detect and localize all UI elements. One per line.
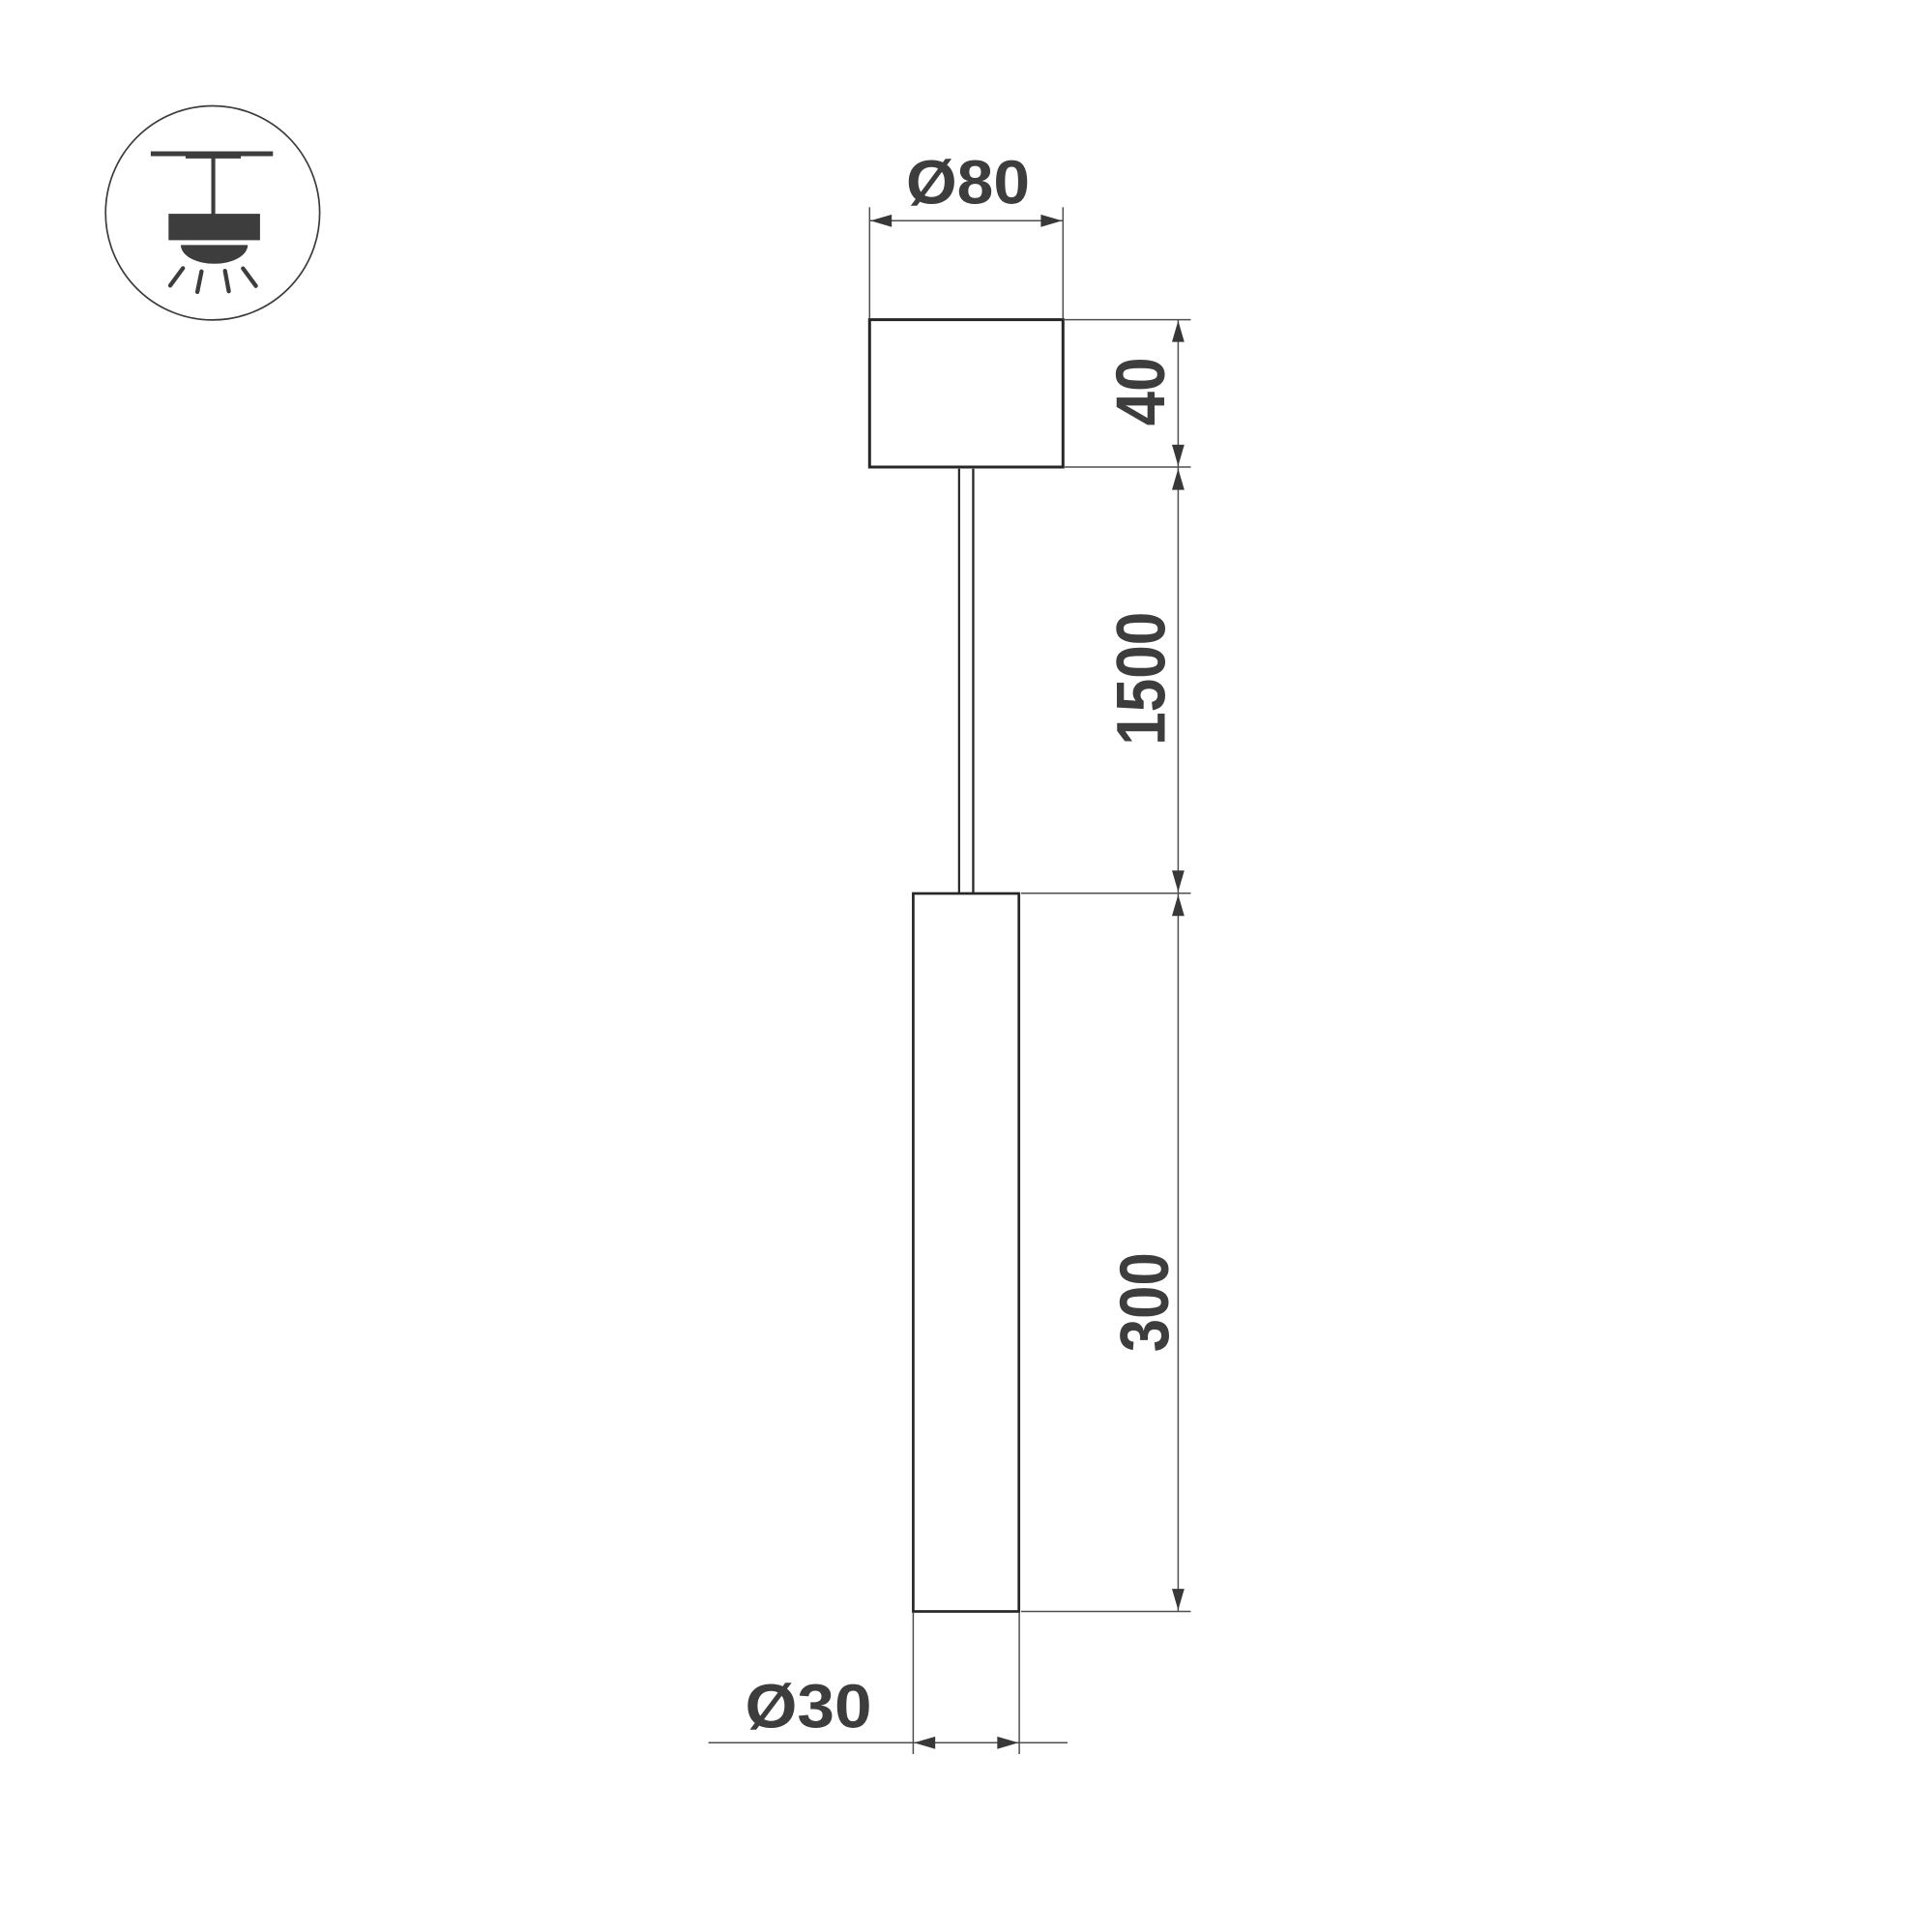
svg-text:300: 300 bbox=[1107, 1252, 1184, 1352]
svg-text:Ø30: Ø30 bbox=[746, 1672, 872, 1742]
svg-text:Ø80: Ø80 bbox=[906, 148, 1030, 218]
svg-text:40: 40 bbox=[1103, 357, 1180, 425]
svg-text:1500: 1500 bbox=[1104, 612, 1181, 746]
